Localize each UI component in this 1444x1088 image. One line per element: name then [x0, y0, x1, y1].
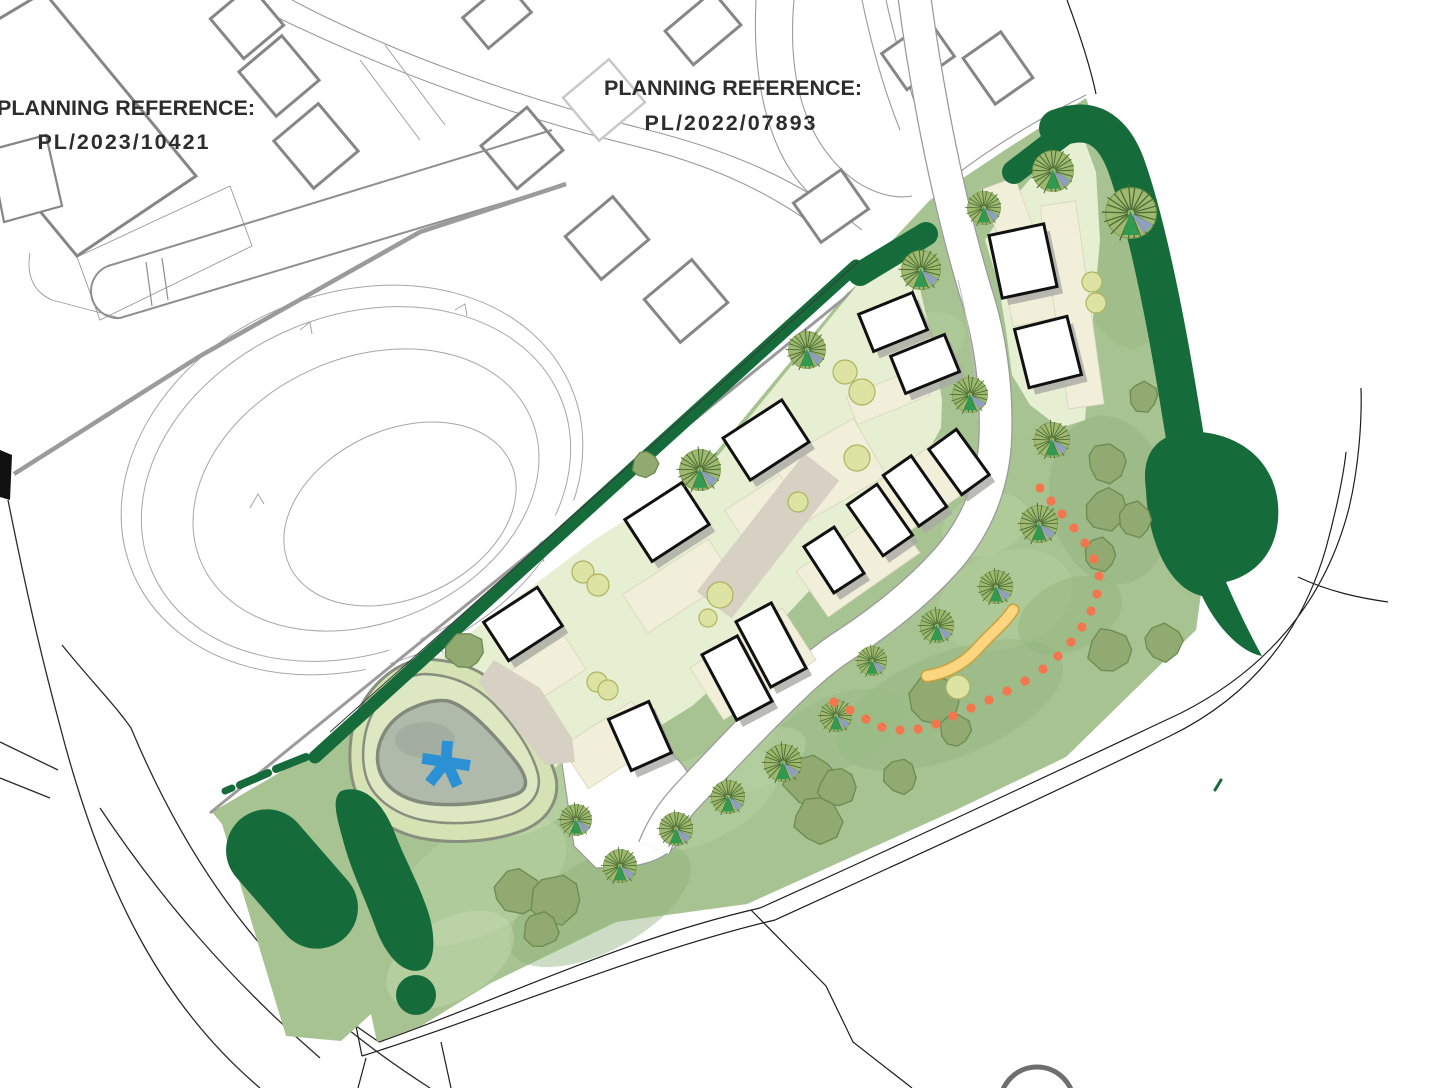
svg-text:PLANNING REFERENCE:: PLANNING REFERENCE: — [604, 76, 862, 100]
svg-text:PL/2023/10421: PL/2023/10421 — [37, 130, 210, 154]
svg-text:PLANNING REFERENCE:: PLANNING REFERENCE: — [0, 96, 255, 120]
svg-text:PL/2022/07893: PL/2022/07893 — [644, 111, 817, 135]
